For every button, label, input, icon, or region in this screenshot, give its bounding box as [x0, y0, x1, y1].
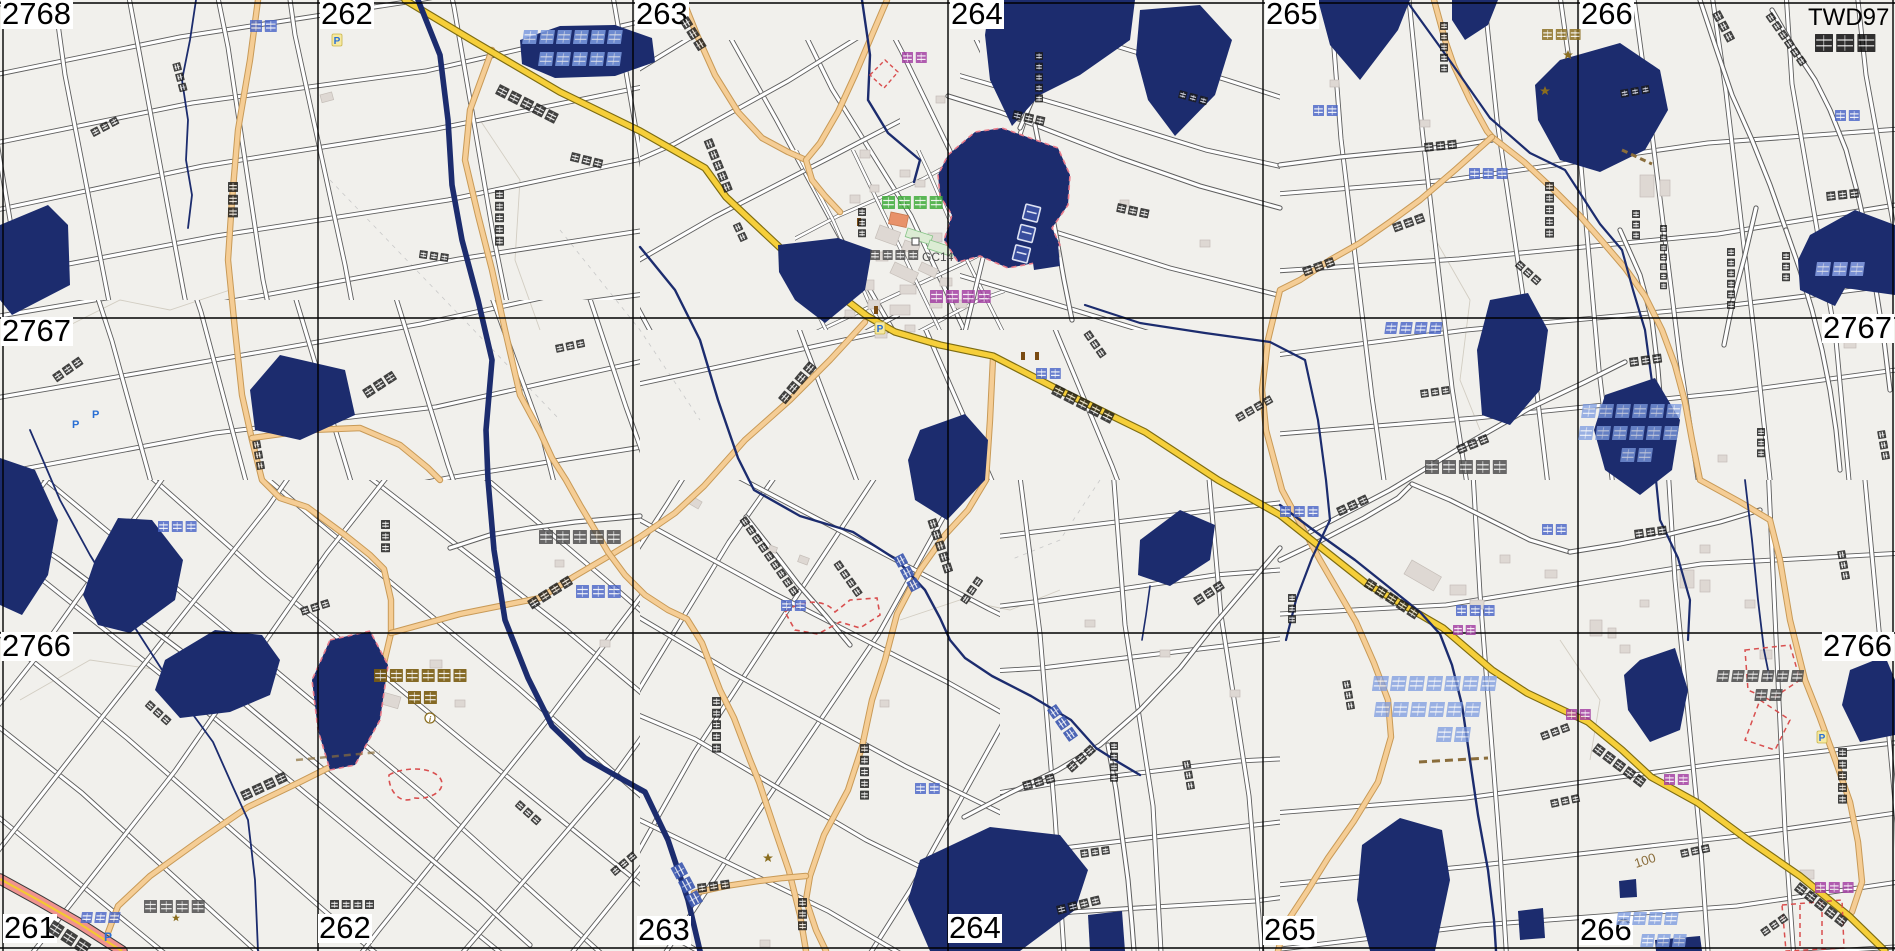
svg-text:266: 266 — [1581, 0, 1633, 31]
svg-text:2766: 2766 — [1823, 628, 1892, 663]
svg-text:263: 263 — [638, 912, 690, 947]
svg-text:P: P — [72, 419, 79, 431]
svg-text:GC14: GC14 — [922, 250, 954, 264]
svg-text:264: 264 — [951, 0, 1003, 31]
svg-text:261: 261 — [4, 910, 56, 945]
svg-text:2767: 2767 — [1823, 310, 1892, 345]
svg-text:262: 262 — [319, 910, 371, 945]
svg-text:262: 262 — [321, 0, 373, 31]
svg-text:P: P — [334, 36, 341, 47]
svg-text:2766: 2766 — [2, 628, 71, 663]
svg-text:P: P — [92, 409, 99, 421]
svg-text:265: 265 — [1264, 912, 1316, 947]
svg-text:P: P — [877, 324, 884, 335]
svg-text:P: P — [104, 930, 112, 944]
svg-text:265: 265 — [1266, 0, 1318, 31]
svg-text:264: 264 — [949, 910, 1001, 945]
svg-text:2768: 2768 — [2, 0, 71, 31]
svg-text:263: 263 — [636, 0, 688, 31]
svg-text:P: P — [1819, 733, 1826, 744]
svg-text:2767: 2767 — [2, 313, 71, 348]
svg-text:TWD97: TWD97 — [1808, 4, 1889, 31]
